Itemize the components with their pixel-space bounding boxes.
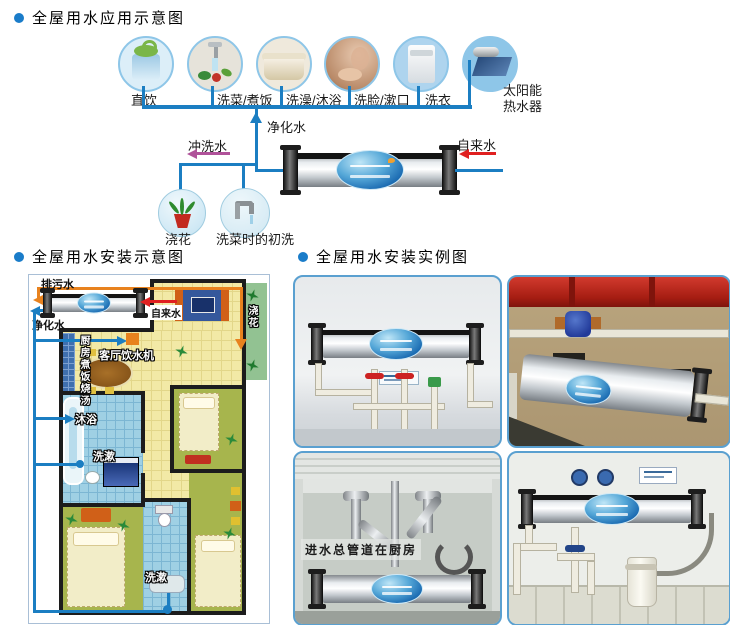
pipe-drop-2 <box>211 86 214 107</box>
photo3-purifier <box>311 569 483 609</box>
plan-purifier-device <box>43 290 145 316</box>
dark-floor <box>509 404 585 446</box>
page: 全屋用水应用示意图 全屋用水安装示意图 全屋用水安装实例图 直饮 洗 <box>0 0 730 625</box>
hands <box>338 68 362 81</box>
arrow-up-purified <box>250 112 262 123</box>
photo1-purifier <box>311 323 481 365</box>
plant-leaf-right <box>184 200 196 214</box>
water-meter <box>565 311 591 337</box>
water-stream <box>212 58 218 71</box>
branch-washer <box>36 463 80 466</box>
photo-hose-installation <box>507 451 730 625</box>
wash-label-1: 洗漱 <box>93 448 115 464</box>
bullet-icon <box>14 13 24 23</box>
plaque-line <box>644 476 664 478</box>
bed <box>179 393 219 451</box>
wall <box>59 391 145 395</box>
purifier-cap-left <box>311 572 323 606</box>
bedroom-bench <box>185 455 211 464</box>
purifier-label-oval <box>77 293 111 314</box>
stool <box>231 487 240 495</box>
purifier-label-oval <box>369 328 423 360</box>
coffee-table <box>191 297 215 313</box>
pipe <box>557 553 595 561</box>
chair <box>105 387 114 394</box>
wall <box>59 328 154 332</box>
face-washing-icon <box>324 36 380 92</box>
plan-tap-label: 自来水 <box>150 305 182 320</box>
arrow-left-plan-tap <box>140 297 150 307</box>
arrow-down-waste <box>235 339 247 350</box>
solar-tank <box>473 47 499 57</box>
vegetable-washing-icon <box>187 36 243 92</box>
sofa-set <box>175 287 229 321</box>
bottle-trap <box>627 557 657 607</box>
bed <box>195 535 241 607</box>
water-purifier-device <box>283 145 457 195</box>
purifier-label-oval <box>371 574 423 604</box>
arrow-left-flush <box>187 149 197 159</box>
pipe-purifier-right-stub <box>455 169 503 172</box>
drinking-dispenser-icon <box>118 36 174 92</box>
purified-main-riser <box>33 311 36 613</box>
faucet-spout <box>208 42 222 47</box>
dispenser-handle <box>142 40 157 54</box>
vegetable-green <box>198 71 211 80</box>
stool <box>230 501 241 511</box>
pillow <box>73 532 119 546</box>
purifier-cap-left <box>283 148 298 192</box>
pipe <box>431 385 438 431</box>
vegetable-red <box>212 73 221 82</box>
cabinet-floor <box>295 611 500 624</box>
flush-point-label-prewash: 洗菜时的初洗 <box>216 229 294 248</box>
wall-cap <box>571 469 588 486</box>
red-valve-handle <box>395 373 414 379</box>
bed <box>67 527 125 607</box>
plan-tap-pipe <box>147 300 177 303</box>
application-title-text: 全屋用水应用示意图 <box>32 7 185 28</box>
examples-title-text: 全屋用水安装实例图 <box>316 246 469 267</box>
pipe-junction-dot <box>76 460 84 468</box>
solar-panel <box>472 57 512 76</box>
wall <box>141 498 191 502</box>
wall <box>187 498 191 611</box>
pipe-joint <box>569 277 575 307</box>
balcony-label: 浇花 <box>244 305 259 329</box>
water-dispenser-box <box>126 333 139 345</box>
pipe-junction-dot <box>163 605 172 614</box>
dispenser-body <box>132 54 160 80</box>
faucet-riser <box>235 203 240 219</box>
blue-valve-handle <box>565 545 585 552</box>
stool <box>231 517 240 525</box>
brass-fitting <box>555 317 565 329</box>
pipe <box>587 561 595 595</box>
pipe-flush-drop-2 <box>242 163 245 190</box>
brass-fitting <box>591 317 601 329</box>
bullet-icon <box>14 252 24 262</box>
arrow-left-tap <box>459 149 469 159</box>
plaque-line <box>644 471 672 473</box>
tap-arrow-shaft <box>468 152 496 155</box>
wash-label-2: 洗漱 <box>145 569 167 585</box>
flush-arrow-shaft <box>196 152 230 155</box>
wall <box>170 385 246 389</box>
photo-wall-installation <box>293 275 502 448</box>
face <box>351 47 369 70</box>
floor <box>295 429 500 446</box>
pipe <box>315 389 373 396</box>
wall <box>150 279 244 283</box>
bullet-icon <box>298 252 308 262</box>
under-sink-caption: 进水总管道在厨房 <box>301 539 421 560</box>
washer-lid <box>410 50 433 56</box>
pipe-drop-3 <box>280 86 283 107</box>
plant-leaf-left <box>168 200 180 214</box>
pipe-bus <box>142 105 472 109</box>
floor-plan: 排污水 自来水 净化水 客厅饮水机 沐浴 洗漱 洗漱 浇 <box>28 274 270 624</box>
arrow-left-waste <box>33 295 43 305</box>
pipe <box>467 401 493 408</box>
pipe-flush-horizontal <box>179 163 258 166</box>
white-pipe <box>509 329 729 338</box>
pipe-drop-5 <box>417 86 420 107</box>
cabinet-shutter <box>295 453 500 479</box>
wall <box>141 391 145 453</box>
purifier-cap-right <box>469 326 481 362</box>
purifier-cap-left <box>43 291 52 315</box>
purifier-label-oval <box>336 150 404 190</box>
purifier-label-oval <box>584 493 640 525</box>
red-main-pipe <box>509 277 729 307</box>
small-pipe <box>509 373 517 419</box>
tiled-floor <box>509 585 729 625</box>
arrow-right-bath <box>65 414 75 424</box>
purifier-cap-right <box>471 572 483 606</box>
pillow <box>201 540 235 552</box>
pipe <box>513 543 521 595</box>
waste-pipe-right <box>240 287 243 343</box>
drain-pipe <box>351 499 361 539</box>
pipe-drop-6 <box>468 60 471 107</box>
use-label-solar: 太阳能热水器 <box>503 83 548 115</box>
washing-machine-icon <box>393 36 449 92</box>
application-section-title: 全屋用水应用示意图 <box>14 7 185 28</box>
green-valve <box>428 377 441 387</box>
faucet-water <box>250 215 253 224</box>
pipe-purifier-left-stub <box>255 169 283 172</box>
flex-hose <box>657 513 714 576</box>
plant-leaf-mid <box>180 198 184 215</box>
trap-ring <box>625 564 657 570</box>
chair-orange <box>81 508 111 522</box>
tub-body <box>264 59 304 80</box>
installation-section-title: 全屋用水安装示意图 <box>14 246 185 267</box>
purified-water-label: 净化水 <box>267 117 306 136</box>
pipe-drop-4 <box>348 86 351 107</box>
installation-title-text: 全屋用水安装示意图 <box>32 246 185 267</box>
toilet-bowl <box>158 513 171 527</box>
wall-plaque <box>639 467 677 484</box>
wall-cap <box>597 469 614 486</box>
wall <box>170 469 246 473</box>
flower-pot <box>173 214 192 228</box>
pipe-drop-1 <box>142 86 145 107</box>
purifier-cap-left <box>521 492 533 526</box>
examples-section-title: 全屋用水安装实例图 <box>298 246 469 267</box>
wall <box>170 385 174 473</box>
pipe-joint <box>649 277 655 307</box>
vegetable-leaf <box>220 67 233 78</box>
red-valve-handle <box>365 373 384 379</box>
plan-purified-label: 净化水 <box>32 317 65 333</box>
bathtub-icon <box>256 36 312 92</box>
purified-bottom-run <box>36 610 170 613</box>
kitchen-label: 厨房煮饭烧汤 <box>76 335 91 407</box>
branch-bath <box>36 417 68 420</box>
wall <box>59 503 145 507</box>
sofa-arm <box>221 287 229 321</box>
washbasin <box>85 471 100 484</box>
purifier-cap-left <box>311 326 323 362</box>
dispenser-label: 客厅饮水机 <box>99 347 154 363</box>
flush-point-label-flowers: 浇花 <box>165 229 191 248</box>
photo-meter-installation <box>507 275 730 448</box>
faucet-down-spout <box>249 203 254 214</box>
pillow <box>183 397 215 409</box>
photo2-purifier <box>515 349 710 423</box>
pipe-flush-drop-1 <box>179 163 182 190</box>
bath-label: 沐浴 <box>75 411 97 427</box>
photo-under-sink-installation: 进水总管道在厨房 <box>293 451 502 625</box>
